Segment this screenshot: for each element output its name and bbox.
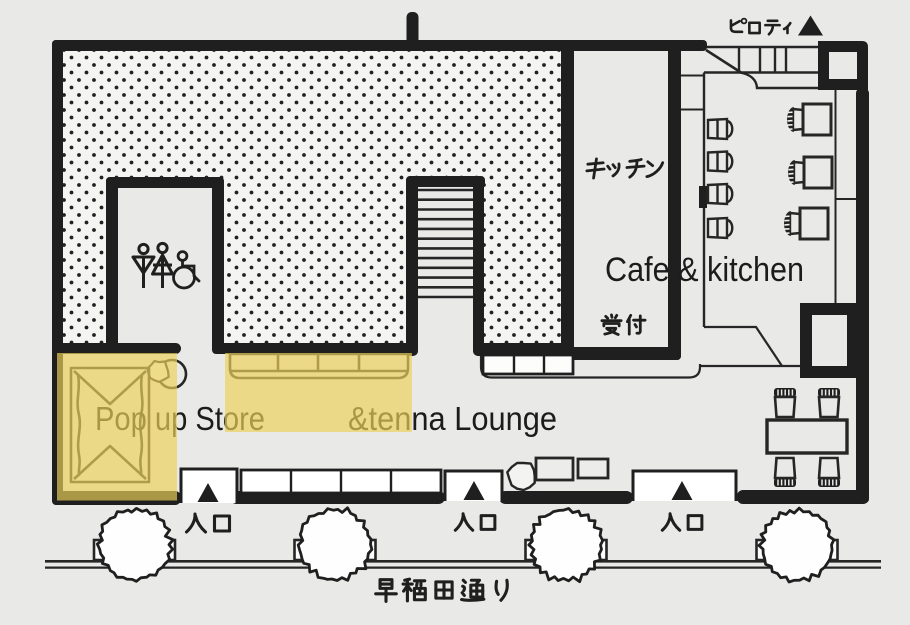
svg-text:Cafe & kitchen: Cafe & kitchen [605, 251, 804, 289]
